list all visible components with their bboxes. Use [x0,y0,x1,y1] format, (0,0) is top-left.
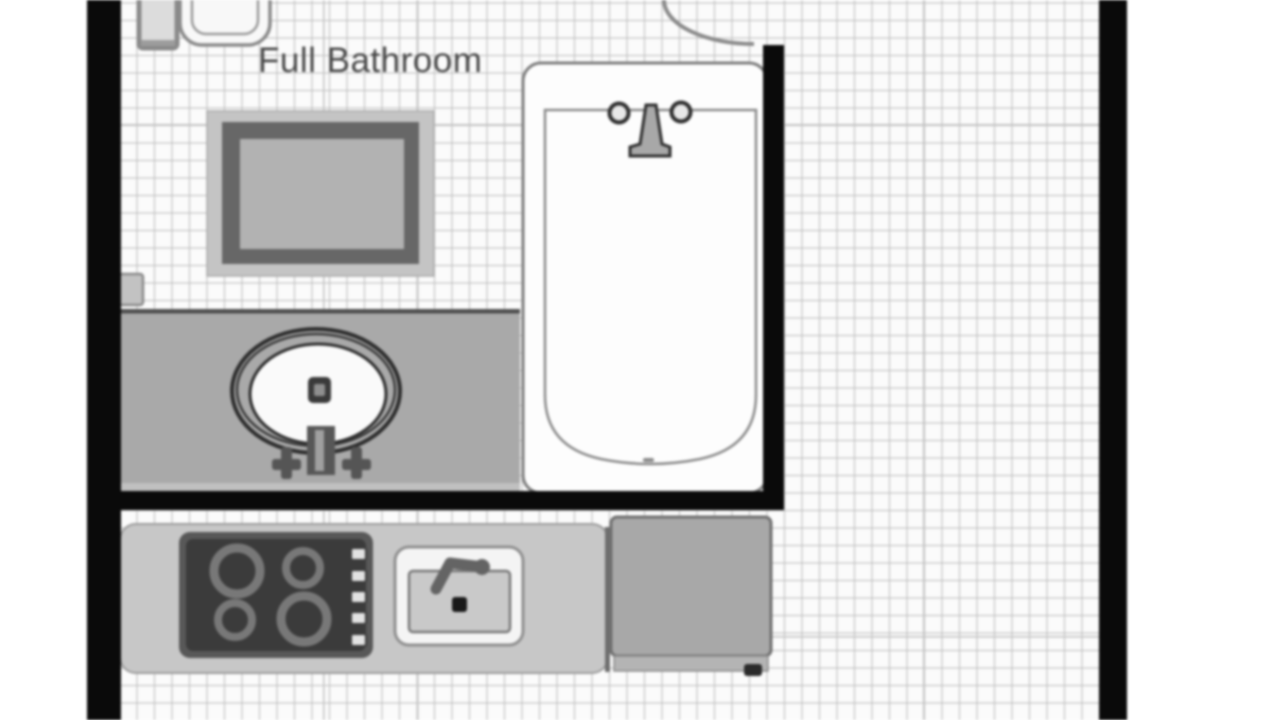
svg-text:Full Bathroom: Full Bathroom [258,41,482,80]
